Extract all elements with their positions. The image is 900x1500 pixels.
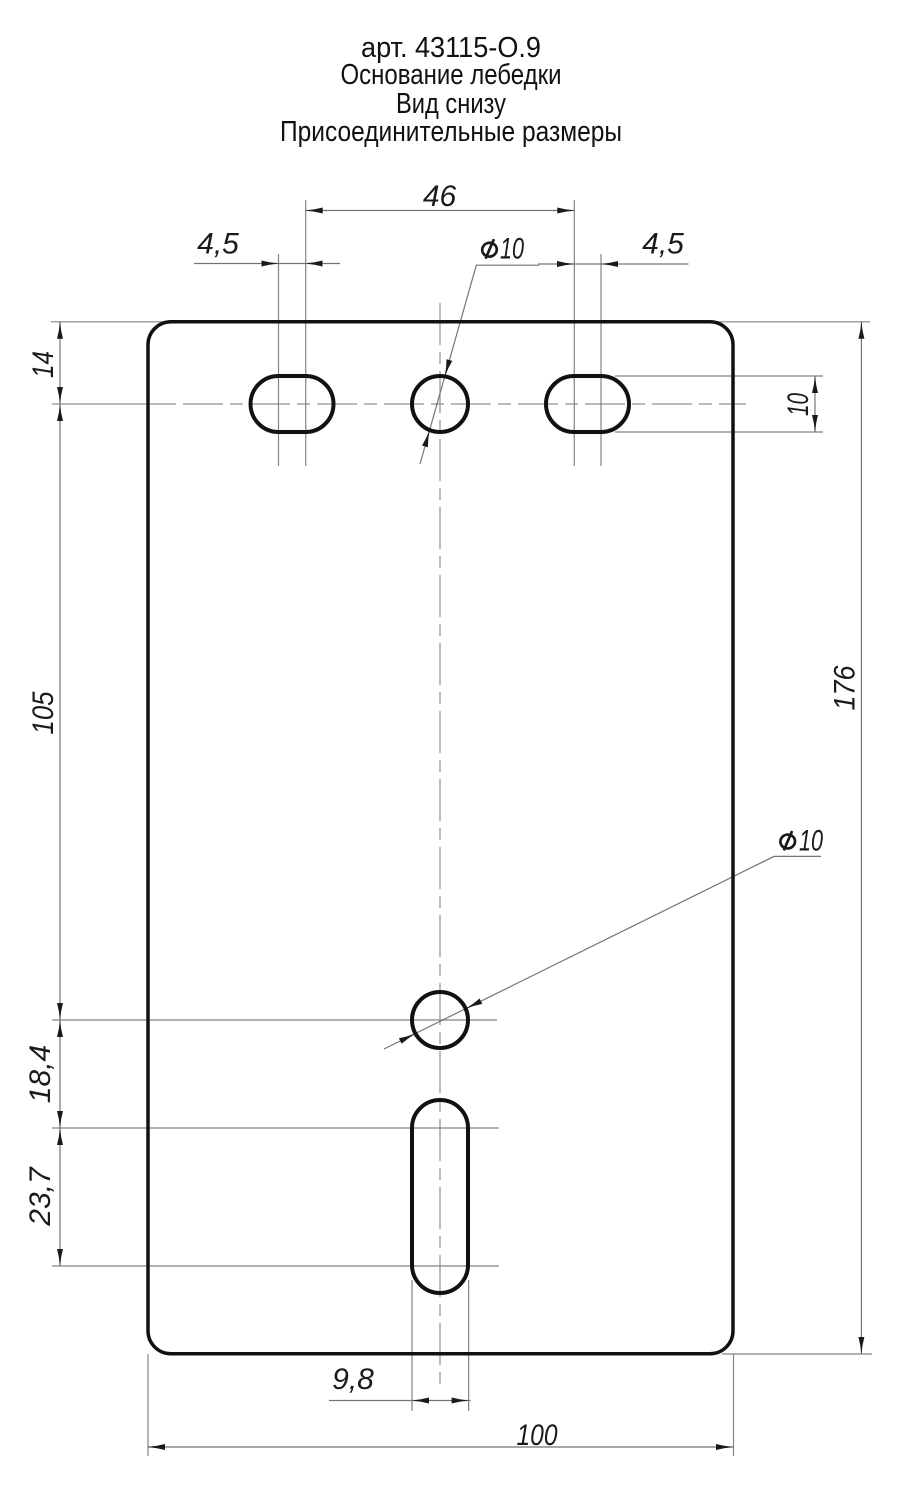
svg-text:4,5: 4,5 [197,228,239,261]
svg-text:23,7: 23,7 [24,1166,57,1227]
svg-text:46: 46 [423,180,457,213]
svg-text:18,4: 18,4 [24,1045,57,1103]
svg-text:100: 100 [517,1419,558,1452]
svg-text:Присоединительные размеры: Присоединительные размеры [280,116,622,148]
svg-text:176: 176 [829,665,862,710]
svg-text:10: 10 [782,393,815,416]
svg-text:10: 10 [799,825,823,858]
svg-text:10: 10 [500,233,524,266]
svg-text:9,8: 9,8 [332,1363,374,1396]
svg-text:14: 14 [27,351,60,378]
svg-text:105: 105 [27,691,60,734]
svg-text:4,5: 4,5 [642,228,684,261]
svg-text:Основание лебедки: Основание лебедки [341,59,562,91]
